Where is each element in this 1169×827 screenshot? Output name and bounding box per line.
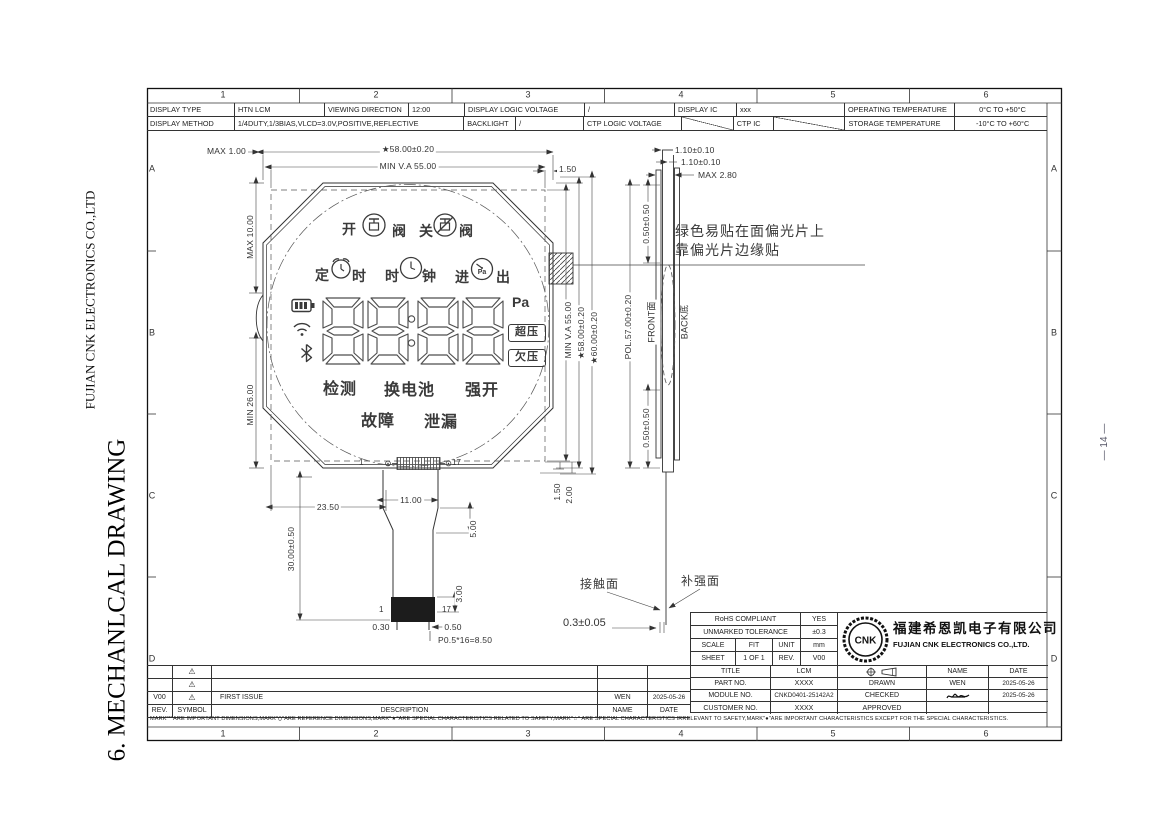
- dim-va55-top: MIN V.A 55.00: [378, 162, 439, 171]
- svg-text:Pa: Pa: [478, 269, 487, 276]
- dim-58-right: ★58.00±0.20: [577, 305, 586, 361]
- fpc-pin-17-label: 17: [442, 606, 451, 614]
- lcd-timer-suffix: 时: [352, 269, 367, 283]
- lcd-status-detect: 检测: [323, 382, 357, 398]
- ruler-col-4-top: 4: [678, 91, 683, 100]
- rev-label: REV.: [773, 652, 801, 666]
- approved-label: APPROVED: [838, 702, 927, 714]
- alarm-clock-icon: [329, 255, 353, 281]
- lcd-fault-label: 故障: [361, 414, 395, 430]
- display-ic-label: DISPLAY IC: [675, 103, 737, 117]
- ruler-row-b-left: B: [149, 329, 155, 338]
- rev-author: WEN: [598, 692, 648, 704]
- dim-pol-57: POL.57.00±0.20: [624, 293, 633, 362]
- lcd-unit-pa: Pa: [512, 295, 529, 309]
- lcd-flag-underpressure: 欠压: [508, 349, 546, 367]
- checked-signature-cell: [927, 690, 989, 702]
- ctp-logic-voltage-value: [682, 117, 734, 131]
- dim-300: 3.00: [455, 583, 464, 604]
- warning-triangle-icon: ⚠: [173, 666, 212, 678]
- part-no-label: PART NO.: [691, 678, 771, 690]
- display-type-value: HTN LCM: [235, 103, 325, 117]
- date-cell: [648, 679, 690, 691]
- dim-110-b: 1.10±0.10: [679, 158, 723, 167]
- sheet-label: SHEET: [691, 652, 736, 666]
- title-value: LCM: [771, 666, 838, 678]
- company-seal-icon: CNK: [842, 616, 889, 663]
- lcd-timer-prefix: 定: [315, 268, 330, 282]
- dim-050: 0.50: [442, 623, 463, 632]
- dim-050050-top: 0.50±0.50: [642, 202, 651, 246]
- dim-va55-right: MIN V.A 55.00: [564, 300, 573, 361]
- lcd-in-label: 进: [455, 270, 470, 284]
- ruler-col-3-top: 3: [525, 91, 530, 100]
- lcd-valve-open-label: 开: [342, 222, 357, 236]
- dim-200-connector: 2.00: [565, 484, 574, 505]
- date-cell: [648, 666, 690, 678]
- viewing-direction-label: VIEWING DIRECTION: [325, 103, 409, 117]
- sheet-value: 1 OF 1: [736, 652, 773, 666]
- footnote-marks-legend: MARK"*"ARE IMPORTANT DIMENSIONS,MARK"()"…: [150, 716, 1047, 722]
- display-ic-value: xxx: [737, 103, 845, 117]
- part-no-value: XXXX: [771, 678, 838, 690]
- dim-fpc-thickness: 0.3±0.05: [563, 618, 606, 629]
- first-issue-description: FIRST ISSUE: [212, 692, 598, 704]
- revision-row-blank-2: ⚠: [147, 679, 690, 692]
- wifi-icon: [292, 320, 312, 337]
- approved-date: [989, 702, 1048, 714]
- ruler-col-5-top: 5: [830, 91, 835, 100]
- ruler-col-6-top: 6: [983, 91, 988, 100]
- unit-value: mm: [801, 639, 838, 652]
- company-name-cn: 福建希恩凯电子有限公司: [893, 622, 1058, 636]
- display-method-value: 1/4DUTY,1/3BIAS,VLCD=3.0V,POSITIVE,REFLE…: [235, 117, 464, 131]
- projection-symbol-cell: [838, 666, 927, 678]
- ruler-row-c-left: C: [149, 492, 156, 501]
- pressure-gauge-icon: Pa: [470, 257, 494, 281]
- dim-max-10: MAX 10.00: [246, 213, 255, 261]
- display-pin-1-label: 1: [359, 459, 363, 467]
- seg-digit: [368, 298, 408, 364]
- customer-no-value: XXXX: [771, 702, 838, 714]
- display-logic-voltage-label: DISPLAY LOGIC VOLTAGE: [465, 103, 585, 117]
- dim-max-1: MAX 1.00: [205, 147, 248, 156]
- storage-temperature-value: -10°C TO +60°C: [955, 117, 1047, 131]
- module-no-value: CNKD0401-25142A2: [771, 690, 838, 702]
- spec-row-2: DISPLAY METHOD 1/4DUTY,1/3BIAS,VLCD=3.0V…: [147, 117, 1047, 131]
- customer-no-label: CUSTOMER NO.: [691, 702, 771, 714]
- company-area: CNK 福建希恩凯电子有限公司 FUJIAN CNK ELECTRONICS C…: [838, 613, 1048, 666]
- dim-150-connector: 1.50: [553, 481, 562, 502]
- drawn-date: 2025-05-26: [989, 678, 1048, 690]
- revision-table: ⚠ ⚠ V00 ⚠ FIRST ISSUE WEN 2025-05-26 REV…: [147, 665, 690, 718]
- ruler-row-d-left: D: [149, 655, 156, 664]
- operating-temperature-label: OPERATING TEMPERATURE: [845, 103, 955, 117]
- scale-label: SCALE: [691, 639, 736, 652]
- drawn-label: DRAWN: [838, 678, 927, 690]
- backlight-value: /: [516, 117, 584, 131]
- ruler-col-2-top: 2: [373, 91, 378, 100]
- checked-date: 2025-05-26: [989, 690, 1048, 702]
- rohs-value: YES: [801, 613, 838, 626]
- dim-30: 30.00±0.50: [287, 525, 296, 573]
- contact-face-label: 接触面: [580, 578, 619, 590]
- back-face-label: BACK底: [681, 303, 690, 342]
- sticker-note-line1: 绿色易贴在面偏光片上: [675, 224, 825, 238]
- desc-cell: [212, 679, 598, 691]
- lcd-status-change-battery: 换电池: [384, 383, 435, 399]
- revision-row-blank-1: ⚠: [147, 666, 690, 679]
- bluetooth-icon: [299, 343, 314, 363]
- rev-date: 2025-05-26: [648, 692, 690, 704]
- title-block-upper: RoHS COMPLIANT YES UNMARKED TOLERANCE ±0…: [691, 613, 838, 666]
- ruler-row-a-left: A: [149, 165, 155, 174]
- company-name-en: FUJIAN CNK ELECTRONICS CO.,LTD.: [893, 641, 1030, 649]
- display-pin-17-label: 17: [452, 459, 461, 467]
- lcd-leak-label: 泄漏: [424, 415, 458, 431]
- lcd-out-label: 出: [496, 270, 511, 284]
- name-cell: [598, 679, 648, 691]
- valve-close-icon: [432, 212, 458, 238]
- revision-row-v00: V00 ⚠ FIRST ISSUE WEN 2025-05-26: [147, 692, 690, 705]
- mechanical-drawing-page: { "page": { "side_company": "FUJIAN CNK …: [0, 0, 1169, 827]
- ruler-row-a-right: A: [1051, 165, 1057, 174]
- stiffener-face-label: 补强面: [681, 575, 720, 587]
- seg-digit: [323, 298, 363, 364]
- display-logic-voltage-value: /: [585, 103, 675, 117]
- seg-digit: [418, 298, 458, 364]
- rev-value: V00: [147, 692, 173, 704]
- module-no-label: MODULE NO.: [691, 690, 771, 702]
- dim-58-top: ★58.00±0.20: [380, 145, 436, 154]
- dim-1100: 11.00: [398, 496, 424, 505]
- ruler-col-5-bottom: 5: [830, 730, 835, 739]
- dim-500: 5.00: [469, 518, 478, 539]
- backlight-label: BACKLIGHT: [464, 117, 516, 131]
- svg-text:CNK: CNK: [855, 636, 877, 647]
- dim-2350: 23.50: [315, 503, 341, 512]
- rohs-label: RoHS COMPLIANT: [691, 613, 801, 626]
- clock-icon: [399, 256, 423, 280]
- display-method-label: DISPLAY METHOD: [147, 117, 235, 131]
- name-cell: [598, 666, 648, 678]
- title-label: TITLE: [691, 666, 771, 678]
- lcd-flag-overpressure: 超压: [508, 324, 546, 342]
- lcd-valve-close-suffix: 阀: [459, 224, 474, 238]
- ruler-col-2-bottom: 2: [373, 730, 378, 739]
- desc-cell: [212, 666, 598, 678]
- rev-cell: [147, 679, 173, 691]
- approved-name: [927, 702, 989, 714]
- name-column-header: NAME: [927, 666, 989, 678]
- title-block: RoHS COMPLIANT YES UNMARKED TOLERANCE ±0…: [690, 612, 1047, 713]
- ctp-logic-voltage-label: CTP LOGIC VOLTAGE: [584, 117, 682, 131]
- fpc-pin-1-label: 1: [379, 606, 383, 614]
- scale-value: FIT: [736, 639, 773, 652]
- dim-050050-bottom: 0.50±0.50: [642, 406, 651, 450]
- ruler-col-1-bottom: 1: [220, 730, 225, 739]
- warning-triangle-icon: ⚠: [173, 692, 212, 704]
- ctp-ic-value: [774, 117, 846, 131]
- projection-symbol-icon: [865, 667, 899, 677]
- date-column-header: DATE: [989, 666, 1048, 678]
- drawn-name: WEN: [927, 678, 989, 690]
- lcd-seven-segment-display: [321, 297, 507, 367]
- lcd-status-force-open: 强开: [465, 383, 499, 399]
- spec-table: DISPLAY TYPE HTN LCM VIEWING DIRECTION 1…: [147, 103, 1047, 131]
- checked-label: CHECKED: [838, 690, 927, 702]
- unit-label: UNIT: [773, 639, 801, 652]
- dim-110-a: 1.10±0.10: [673, 146, 717, 155]
- rev-value: V00: [801, 652, 838, 666]
- warning-triangle-icon: ⚠: [173, 679, 212, 691]
- battery-icon: [291, 298, 316, 313]
- dim-max-280: MAX 2.80: [696, 171, 739, 180]
- dim-pitch: P0.5*16=8.50: [436, 636, 494, 645]
- ruler-row-c-right: C: [1051, 492, 1058, 501]
- dim-min-26: MIN 26.00: [246, 382, 255, 427]
- dim-030: 0.30: [370, 623, 391, 632]
- ruler-col-4-bottom: 4: [678, 730, 683, 739]
- display-type-label: DISPLAY TYPE: [147, 103, 235, 117]
- ctp-ic-label: CTP IC: [734, 117, 774, 131]
- ruler-col-3-bottom: 3: [525, 730, 530, 739]
- rev-cell: [147, 666, 173, 678]
- tolerance-label: UNMARKED TOLERANCE: [691, 626, 801, 639]
- lcd-valve-open-suffix: 阀: [392, 224, 407, 238]
- ruler-row-d-right: D: [1051, 655, 1058, 664]
- valve-open-icon: [361, 212, 387, 238]
- dim-60-right: ★60.00±0.20: [590, 310, 599, 366]
- ruler-row-b-right: B: [1051, 329, 1057, 338]
- storage-temperature-label: STORAGE TEMPERATURE: [845, 117, 955, 131]
- seg-digit: [463, 298, 503, 364]
- operating-temperature-value: 0°C TO +50°C: [955, 103, 1047, 117]
- dim-150-top: 1.50: [557, 165, 578, 174]
- viewing-direction-value: 12:00: [409, 103, 465, 117]
- ruler-col-1-top: 1: [220, 91, 225, 100]
- spec-row-1: DISPLAY TYPE HTN LCM VIEWING DIRECTION 1…: [147, 103, 1047, 117]
- lcd-clock-suffix: 钟: [422, 269, 437, 283]
- lcd-clock-prefix: 时: [385, 269, 400, 283]
- tolerance-value: ±0.3: [801, 626, 838, 639]
- signature-icon: [945, 691, 971, 701]
- sticker-note-line2: 靠偏光片边缘贴: [675, 243, 780, 257]
- ruler-col-6-bottom: 6: [983, 730, 988, 739]
- title-block-lower: TITLE LCM NAME DATE PART NO. XXXX DRAWN …: [691, 666, 1048, 714]
- front-face-label: FRONT面: [648, 299, 657, 344]
